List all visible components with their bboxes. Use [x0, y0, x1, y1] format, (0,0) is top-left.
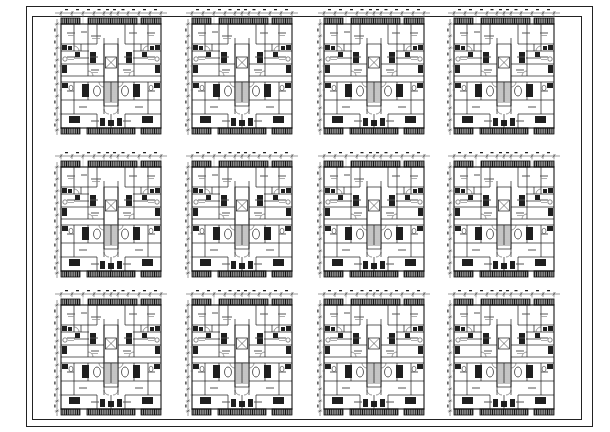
floor-plan-tile [55, 153, 167, 278]
floor-plan-tile [55, 10, 167, 135]
floor-plan-grid [0, 0, 610, 432]
floor-plan-tile [186, 10, 298, 135]
floor-plan-tile [448, 291, 560, 416]
floor-plan-tile [318, 153, 430, 278]
drawing-sheet [0, 0, 610, 432]
floor-plan-tile [55, 291, 167, 416]
floor-plan-tile [186, 291, 298, 416]
floor-plan-tile [318, 10, 430, 135]
floor-plan-tile [448, 153, 560, 278]
floor-plan-tile [448, 10, 560, 135]
floor-plan-tile [186, 153, 298, 278]
floor-plan-tile [318, 291, 430, 416]
